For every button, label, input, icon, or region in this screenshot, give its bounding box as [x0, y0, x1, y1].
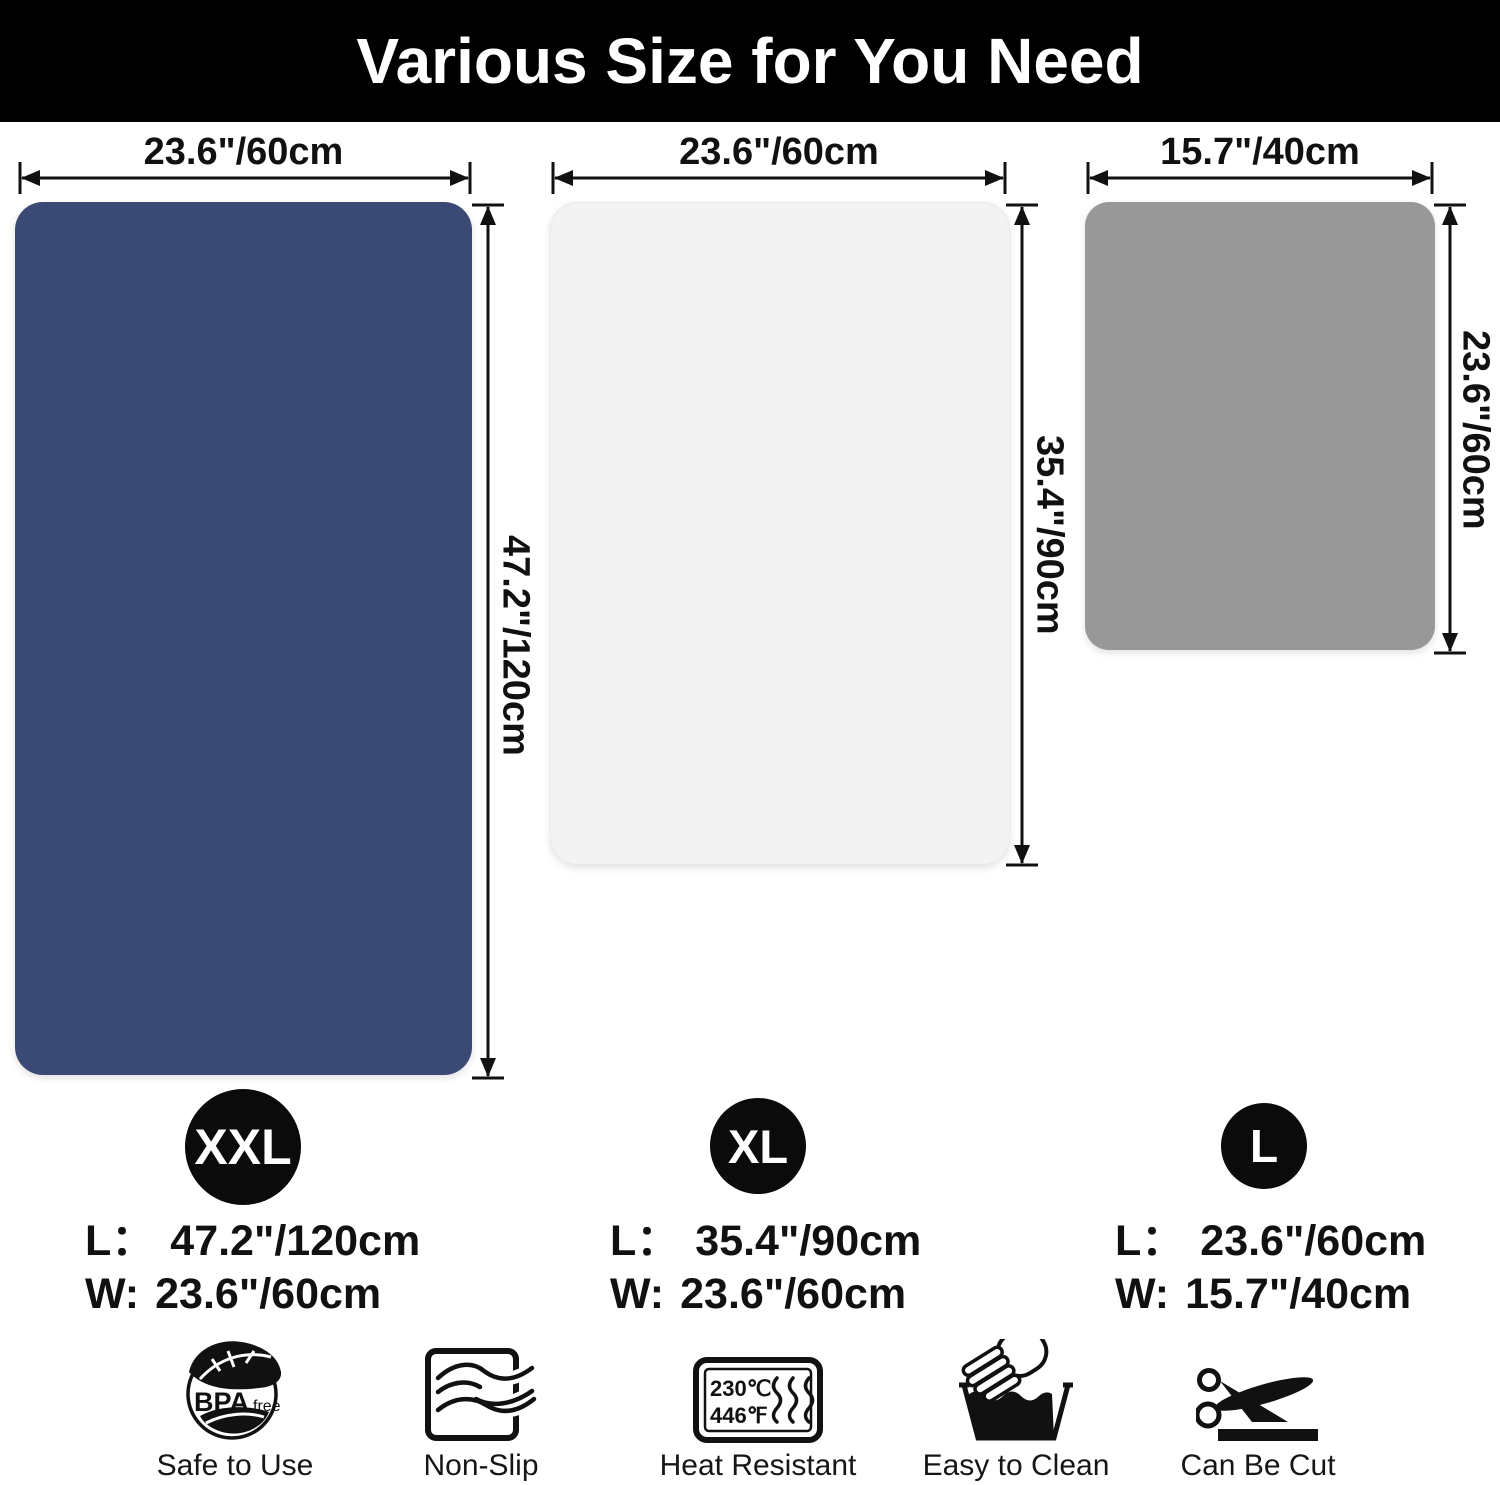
l-length-dimension-label: 23.6"/60cm [1452, 290, 1498, 570]
spec-width-row: W: 23.6"/60cm [85, 1270, 420, 1334]
spec-length-row: L： 23.6"/60cm [1115, 1206, 1426, 1270]
width-value: 23.6"/60cm [680, 1270, 906, 1319]
length-label: L： [1115, 1206, 1184, 1268]
bpa-free-icon: BPA free [176, 1333, 294, 1443]
width-value: 15.7"/40cm [1185, 1270, 1411, 1319]
mat-xl [550, 202, 1010, 865]
page-title: Various Size for You Need [356, 24, 1143, 98]
size-badge-xxl: XXL [185, 1089, 301, 1205]
spec-length-row: L： 47.2"/120cm [85, 1206, 420, 1270]
width-label: W: [85, 1270, 139, 1319]
length-label: L： [610, 1206, 679, 1268]
xxl-width-arrow [18, 158, 472, 198]
infographic-canvas: Various Size for You Need 23.6"/60cm 47.… [0, 0, 1500, 1485]
spec-length-row: L： 35.4"/90cm [610, 1206, 921, 1270]
size-badge-l: L [1221, 1103, 1307, 1189]
bpa-free-text: free [253, 1398, 281, 1415]
spec-block-l: L： 23.6"/60cm W: 15.7"/40cm [1115, 1206, 1426, 1334]
feature-label: Non-Slip [423, 1449, 538, 1483]
xl-width-arrow [551, 158, 1007, 198]
xxl-length-dimension-label: 47.2"/120cm [492, 480, 538, 810]
width-value: 23.6"/60cm [155, 1270, 381, 1319]
feature-label: Safe to Use [157, 1449, 314, 1483]
spec-block-xl: L： 35.4"/90cm W: 23.6"/60cm [610, 1206, 921, 1334]
length-value: 35.4"/90cm [695, 1217, 921, 1266]
feature-non-slip: Non-Slip [366, 1333, 596, 1483]
width-label: W: [610, 1270, 664, 1319]
length-value: 47.2"/120cm [170, 1217, 420, 1266]
feature-label: Can Be Cut [1180, 1449, 1335, 1483]
temp-celsius: 230℃ [710, 1376, 771, 1401]
mat-l [1085, 202, 1435, 650]
length-value: 23.6"/60cm [1200, 1217, 1426, 1266]
spec-block-xxl: L： 47.2"/120cm W: 23.6"/60cm [85, 1206, 420, 1334]
length-label: L： [85, 1206, 154, 1268]
can-be-cut-icon [1196, 1333, 1320, 1443]
heat-resistant-icon: 230℃ 446℉ [693, 1333, 823, 1443]
feature-easy-to-clean: Easy to Clean [901, 1333, 1131, 1483]
feature-safe-to-use: BPA free Safe to Use [120, 1333, 350, 1483]
feature-label: Easy to Clean [923, 1449, 1110, 1483]
easy-to-clean-icon [957, 1333, 1075, 1443]
xl-length-dimension-label: 35.4"/90cm [1026, 390, 1072, 680]
feature-heat-resistant: 230℃ 446℉ Heat Resistant [643, 1333, 873, 1483]
feature-label: Heat Resistant [660, 1449, 857, 1483]
feature-can-be-cut: Can Be Cut [1143, 1333, 1373, 1483]
spec-width-row: W: 23.6"/60cm [610, 1270, 921, 1334]
non-slip-icon [424, 1333, 539, 1443]
l-width-arrow [1086, 158, 1434, 198]
temp-fahrenheit: 446℉ [710, 1403, 768, 1428]
spec-width-row: W: 15.7"/40cm [1115, 1270, 1426, 1334]
bpa-text: BPA [194, 1387, 249, 1417]
header-bar: Various Size for You Need [0, 0, 1500, 122]
mat-xxl [15, 202, 472, 1075]
size-badge-xl: XL [710, 1098, 806, 1194]
width-label: W: [1115, 1270, 1169, 1319]
